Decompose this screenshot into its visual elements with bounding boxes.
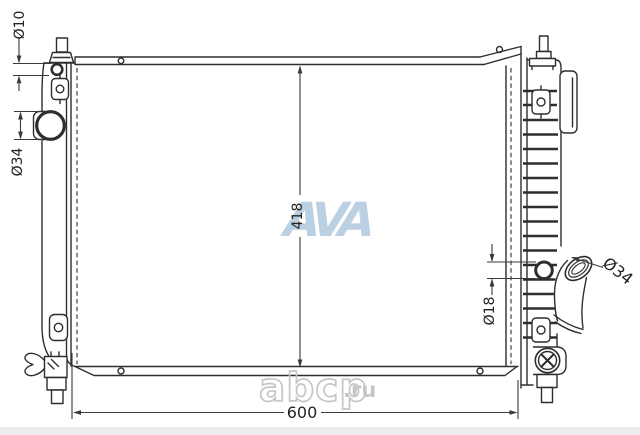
dimension-height-418: 418 <box>290 66 306 368</box>
top-plate-hole <box>118 58 124 64</box>
bleeder-cap <box>50 38 74 63</box>
dim-label-diameter-10: Ø10 <box>12 11 28 40</box>
bottom-plate-hole-right <box>477 368 483 374</box>
right-port-18mm <box>536 262 553 279</box>
dim-label-diameter-34-hose: Ø34 <box>599 253 637 288</box>
radiator-technical-drawing: AVA Ø10 Ø34 418 600 Ø18 Ø34 abcp <box>0 0 640 435</box>
right-drain-plug <box>533 347 566 403</box>
inlet-port-10mm <box>52 64 63 75</box>
dim-label-height: 418 <box>290 203 306 230</box>
left-tank <box>25 38 75 404</box>
outlet-hose <box>554 252 596 334</box>
dimension-top-port: Ø10 <box>12 11 51 91</box>
tank-ribs <box>523 91 558 338</box>
right-tank <box>521 36 596 403</box>
right-lower-clip <box>532 318 550 342</box>
dim-label-diameter-18: Ø18 <box>482 297 498 326</box>
wing-handle <box>25 353 45 375</box>
abcp-watermark-domain: .ru <box>343 378 376 402</box>
left-port-34mm <box>34 112 65 140</box>
dim-label-diameter-34-left: Ø34 <box>10 147 26 176</box>
right-upper-clip <box>532 86 550 118</box>
side-bracket <box>560 71 577 133</box>
mounting-stud <box>530 36 556 70</box>
left-drain-valve <box>25 352 67 404</box>
left-lower-clip <box>50 315 68 341</box>
image-bottom-border <box>0 427 640 435</box>
bottom-plate-hole-left <box>118 368 124 374</box>
abcp-watermark: abcp .ru <box>259 366 376 411</box>
left-upper-clip <box>52 75 69 104</box>
radiator-part-image: AVA Ø10 Ø34 418 600 Ø18 Ø34 abcp <box>0 0 640 435</box>
dimension-right-port: Ø18 <box>482 244 536 325</box>
